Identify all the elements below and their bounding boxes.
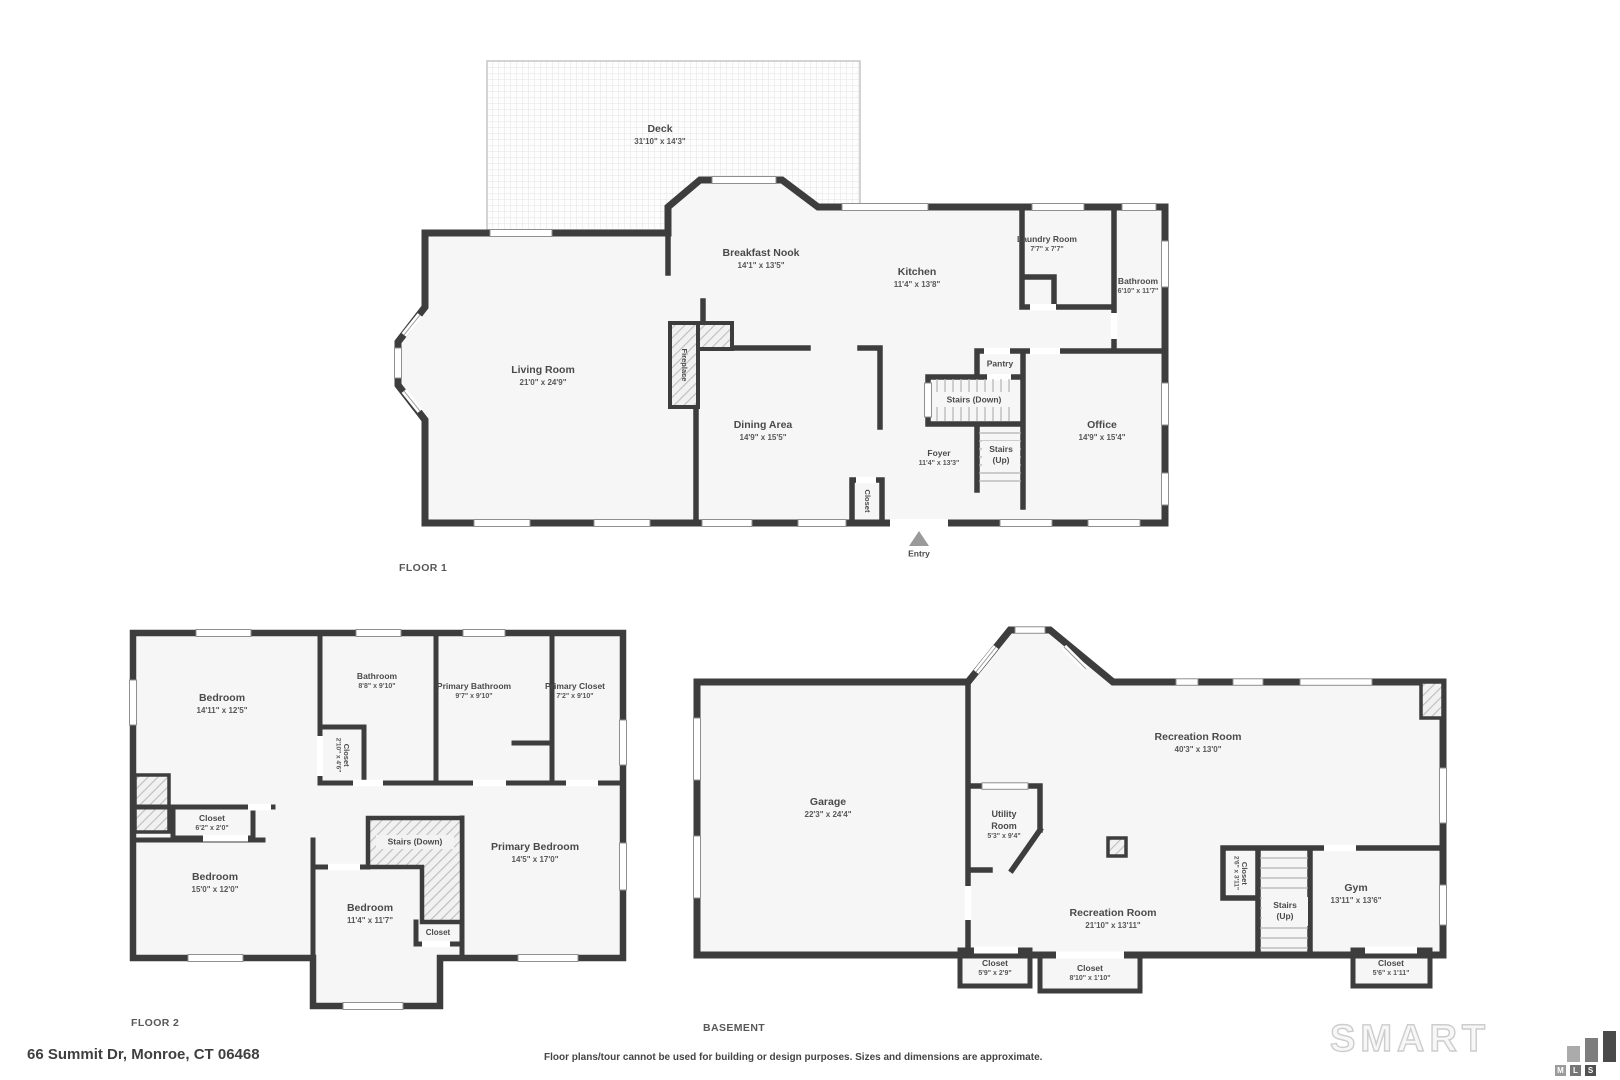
floor1-label-laundry: Laundry Room 7'7" x 7'7" [1017, 234, 1077, 254]
basement-drawing [688, 618, 1453, 1013]
floor1-label-bathroom: Bathroom 6'10" x 11'7" [1118, 276, 1159, 296]
basement-label-closet-b: Closet 8'10" x 1'10" [1069, 963, 1110, 983]
support-column [1108, 838, 1126, 856]
floor1-label-fireplace: Fireplace [679, 349, 689, 382]
room-dims: 31'10" x 14'3" [634, 137, 685, 147]
basement-label-garage: Garage 22'3" x 24'4" [805, 796, 852, 820]
logo-bar [1585, 1038, 1598, 1062]
floor2-label-primary-bedroom: Primary Bedroom 14'5" x 17'0" [491, 841, 579, 865]
basement-caption: BASEMENT [703, 1022, 765, 1034]
room-name: Deck [634, 123, 685, 137]
floor2-label-bathroom: Bathroom 8'8" x 9'10" [357, 671, 397, 691]
floor1-plan: Deck 31'10" x 14'3" Breakfast Nook 14'1"… [390, 55, 1180, 570]
floor2-label-primary-closet: Primary Closet 7'2" x 9'10" [545, 681, 605, 701]
logo-wordmark: SMART [1330, 1020, 1490, 1058]
floor2-label-closet-c: Closet [426, 928, 450, 938]
floor1-label-pantry: Pantry [987, 358, 1013, 369]
floor1-label-kitchen: Kitchen 11'4" x 13'8" [894, 266, 941, 290]
basement-plan: Garage 22'3" x 24'4" Utility Room 5'3" x… [688, 618, 1453, 1013]
floor1-label-stairs-down: Stairs (Down) [947, 394, 1002, 405]
floor2-label-primary-bathroom: Primary Bathroom 9'7" x 9'10" [437, 681, 511, 701]
basement-label-closet-a: Closet 5'9" x 2'9" [978, 958, 1011, 978]
logo-letter-s: S [1585, 1065, 1596, 1076]
basement-label-recreation-room-b: Recreation Room 21'10" x 13'11" [1070, 907, 1157, 931]
floor1-label-closet: Closet [862, 490, 872, 513]
floor1-label-dining-area: Dining Area 14'9" x 15'5" [734, 419, 793, 443]
floor2-label-stairs-down: Stairs (Down) [388, 836, 443, 847]
fireplace-side-block [698, 323, 732, 349]
logo-bar [1603, 1031, 1616, 1062]
floor1-label-stairs-up: Stairs (Up) [989, 444, 1013, 466]
disclaimer-text: Floor plans/tour cannot be used for buil… [544, 1052, 1042, 1063]
floor1-label-office: Office 14'9" x 15'4" [1079, 419, 1126, 443]
logo-bars-icon [1567, 1031, 1616, 1062]
basement-label-stairs-up: Stairs (Up) [1273, 900, 1297, 922]
floor1-label-breakfast-nook: Breakfast Nook 14'1" x 13'5" [722, 247, 799, 271]
floor1-label-deck: Deck 31'10" x 14'3" [634, 123, 685, 147]
logo-bar [1567, 1046, 1580, 1062]
basement-label-closet-c: Closet 5'6" x 1'11" [1373, 958, 1410, 978]
basement-label-gym: Gym 13'11" x 13'6" [1331, 882, 1382, 906]
floor2-label-closet-b: Closet 6'2" x 2'0" [195, 813, 228, 833]
floor1-label-foyer: Foyer 11'4" x 13'3" [919, 448, 960, 468]
floor2-caption: FLOOR 2 [131, 1017, 179, 1029]
entry-arrow-icon [909, 531, 929, 546]
floor2-label-bedroom-a: Bedroom 14'11" x 12'5" [197, 692, 248, 716]
floor2-plan: Bedroom 14'11" x 12'5" Bathroom 8'8" x 9… [128, 628, 628, 1013]
floor1-label-entry: Entry [908, 548, 930, 559]
logo-letter-m: M [1555, 1065, 1566, 1076]
floor1-label-living-room: Living Room 21'0" x 24'9" [511, 364, 575, 388]
floor2-label-bedroom-b: Bedroom 15'0" x 12'0" [192, 871, 239, 895]
basement-label-recreation-room-a: Recreation Room 40'3" x 13'0" [1155, 731, 1242, 755]
floor1-caption: FLOOR 1 [399, 562, 447, 574]
floor1-drawing [390, 55, 1180, 570]
smartmls-logo: SMART M L S [1330, 1020, 1620, 1076]
logo-mls-letters: M L S [1555, 1065, 1596, 1076]
basement-label-utility-room: Utility Room 5'3" x 9'4" [987, 809, 1020, 841]
floor2-label-bedroom-c: Bedroom 11'4" x 11'7" [347, 902, 393, 926]
hatched-pier [1421, 682, 1443, 718]
logo-letter-l: L [1570, 1065, 1581, 1076]
chimney-block [135, 775, 169, 832]
property-address: 66 Summit Dr, Monroe, CT 06468 [27, 1046, 260, 1063]
floor2-label-closet-hall: Closet 2'10" x 4'6" [333, 738, 351, 773]
basement-label-closet-stairs: Closet 2'6" x 3'11" [1231, 856, 1249, 890]
